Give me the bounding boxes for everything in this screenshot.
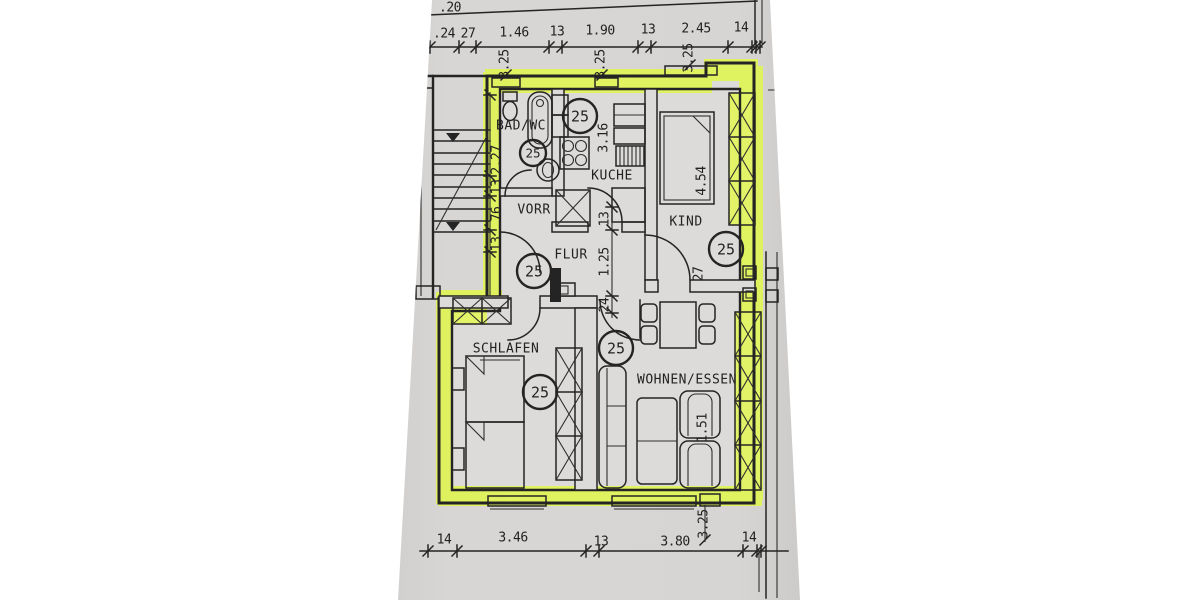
svg-text:3.25: 3.25 xyxy=(682,43,697,72)
svg-text:1.46: 1.46 xyxy=(499,26,528,41)
room-label-schlafen: SCHLAFEN xyxy=(473,342,540,357)
svg-text:25: 25 xyxy=(571,108,589,126)
svg-text:13: 13 xyxy=(598,212,613,227)
svg-text:1.25: 1.25 xyxy=(598,247,613,276)
svg-text:14: 14 xyxy=(734,21,749,36)
svg-text:2.45: 2.45 xyxy=(681,22,710,37)
svg-text:3.25: 3.25 xyxy=(697,509,712,538)
svg-text:27: 27 xyxy=(461,27,476,42)
svg-text:25: 25 xyxy=(607,340,625,358)
svg-text:3.25: 3.25 xyxy=(594,49,609,78)
room-label-kueche: KUCHE xyxy=(591,169,633,184)
svg-text:2.27: 2.27 xyxy=(490,145,505,174)
room-label-wohnen: WOHNEN/ESSEN xyxy=(637,373,737,388)
svg-text:3.80: 3.80 xyxy=(660,535,689,550)
room-label-kind: KIND xyxy=(669,215,702,230)
floor-plan-photo: BAD/WC KUCHE VORR FLUR KIND SCHLAFEN WOH… xyxy=(0,0,1200,600)
svg-text:76: 76 xyxy=(490,207,505,222)
room-label-bad: BAD/WC xyxy=(496,119,546,134)
svg-text:4.54: 4.54 xyxy=(695,166,710,196)
svg-text:1.90: 1.90 xyxy=(585,24,614,39)
svg-text:14: 14 xyxy=(437,533,452,548)
room-label-vorr: VORR xyxy=(517,203,550,218)
svg-text:3.46: 3.46 xyxy=(498,531,527,546)
svg-text:3.16: 3.16 xyxy=(597,123,612,152)
svg-text:14: 14 xyxy=(742,531,757,546)
svg-text:13: 13 xyxy=(641,23,656,38)
svg-text:25: 25 xyxy=(717,241,735,259)
room-label-flur: FLUR xyxy=(554,248,587,263)
svg-text:13: 13 xyxy=(594,535,609,550)
svg-text:13: 13 xyxy=(490,180,505,195)
svg-text:13: 13 xyxy=(550,25,565,40)
svg-text:24: 24 xyxy=(598,297,613,312)
svg-text:25: 25 xyxy=(525,146,540,161)
svg-text:13: 13 xyxy=(490,237,505,252)
dim-top-partial: .20 xyxy=(439,1,461,16)
svg-text:3.25: 3.25 xyxy=(498,49,513,78)
svg-text:25: 25 xyxy=(531,384,549,402)
svg-text:25: 25 xyxy=(525,263,543,281)
svg-text:27: 27 xyxy=(692,267,707,282)
svg-text:1.51: 1.51 xyxy=(696,413,711,442)
floor-plan-drawing: BAD/WC KUCHE VORR FLUR KIND SCHLAFEN WOH… xyxy=(0,0,1200,600)
svg-text:.24: .24 xyxy=(433,27,456,42)
